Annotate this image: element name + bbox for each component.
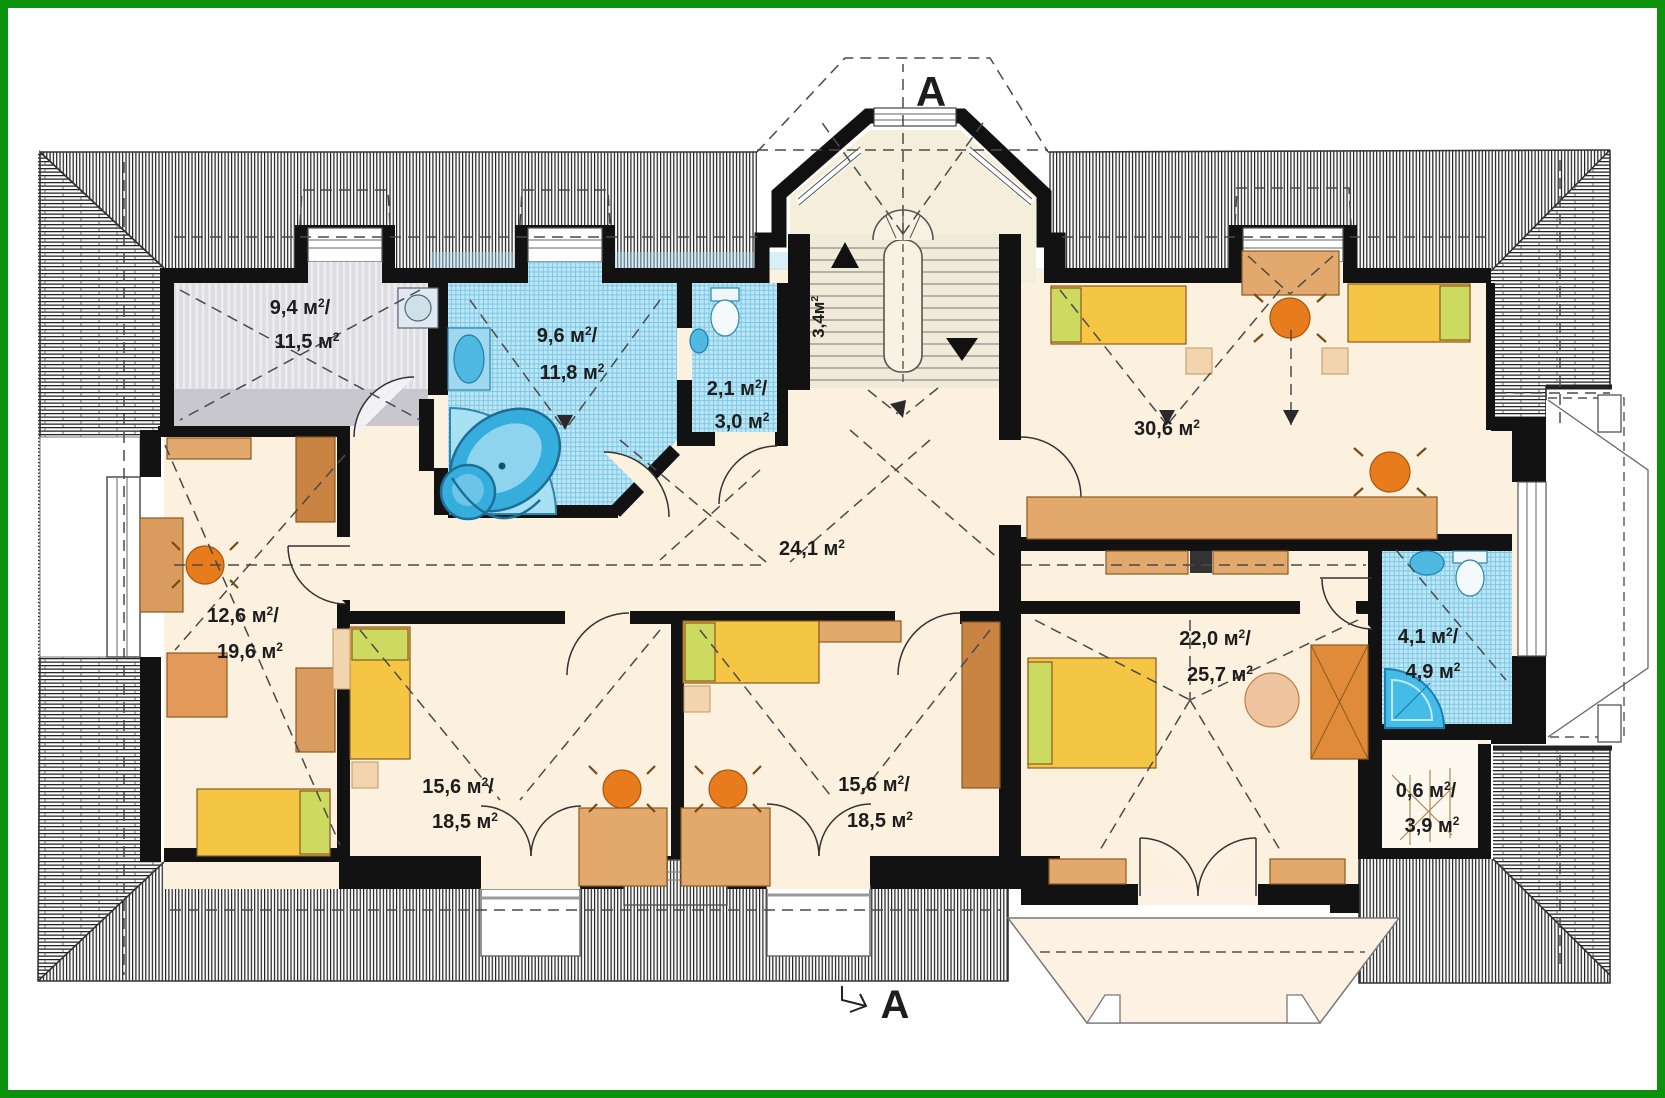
svg-text:3,4м2: 3,4м2: [809, 296, 828, 338]
svg-text:A: A: [881, 983, 910, 1027]
svg-text:4,9 м2: 4,9 м2: [1406, 660, 1461, 683]
svg-text:19,6 м2: 19,6 м2: [217, 640, 283, 663]
svg-text:30,6 м2: 30,6 м2: [1134, 417, 1200, 440]
svg-text:11,5 м2: 11,5 м2: [275, 330, 340, 353]
svg-text:3,0 м2: 3,0 м2: [715, 410, 770, 433]
svg-text:25,7 м2: 25,7 м2: [1187, 663, 1253, 686]
svg-text:11,8 м2: 11,8 м2: [540, 361, 605, 384]
svg-text:18,5 м2: 18,5 м2: [847, 809, 913, 832]
svg-text:24,1 м2: 24,1 м2: [779, 537, 845, 560]
svg-text:A: A: [916, 68, 946, 115]
svg-text:3,9 м2: 3,9 м2: [1405, 814, 1460, 837]
svg-text:18,5 м2: 18,5 м2: [432, 810, 498, 833]
